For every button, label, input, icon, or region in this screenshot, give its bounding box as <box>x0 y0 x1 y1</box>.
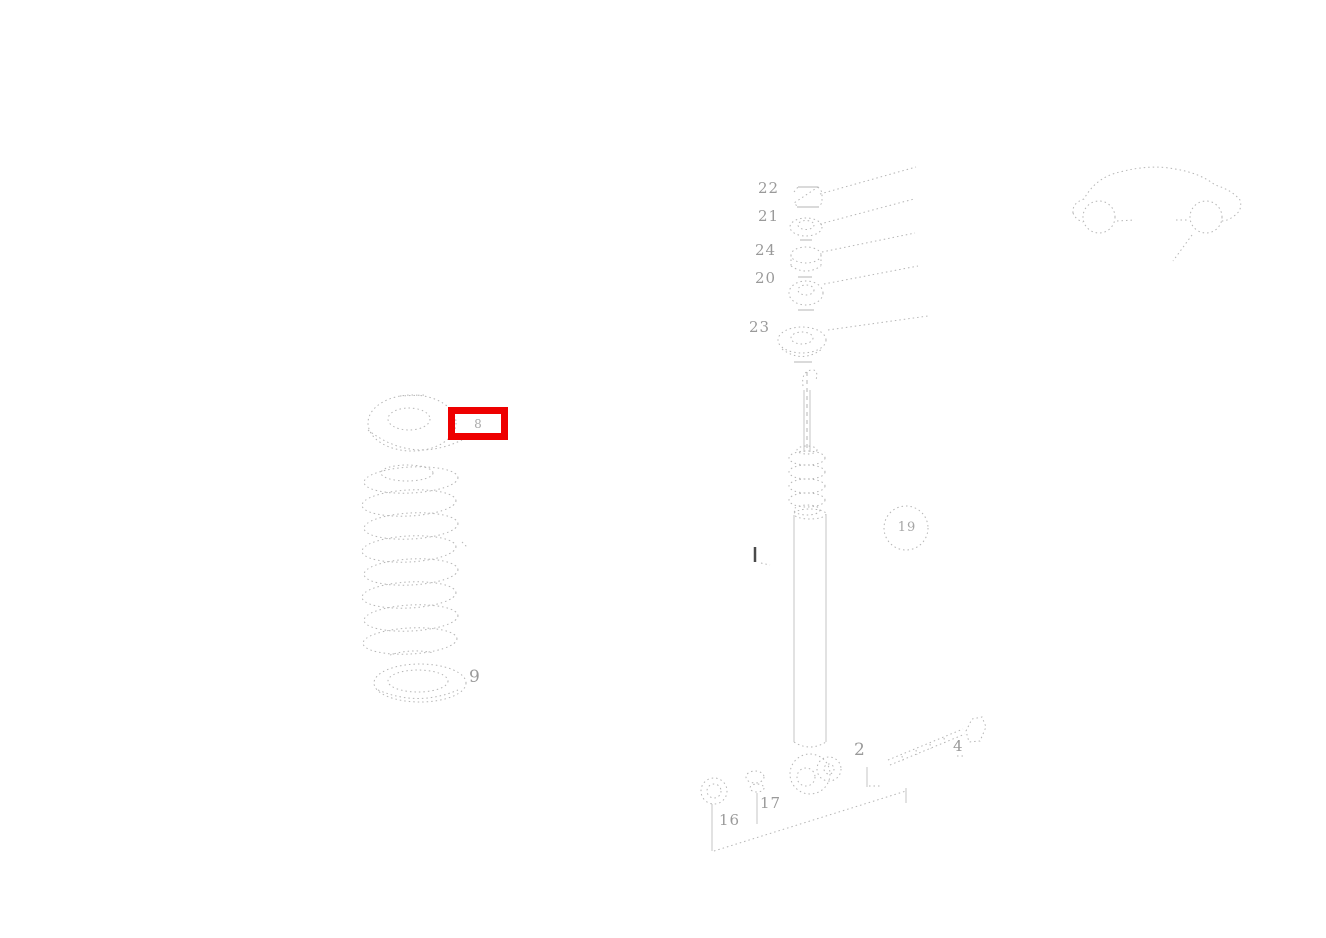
shock-boot-drawing <box>789 446 825 515</box>
shock-body-drawing <box>794 509 826 747</box>
hex-bolt-4-drawing <box>888 717 986 765</box>
spring-lower-seat-drawing <box>374 651 466 702</box>
leader-line <box>820 167 916 194</box>
callout-17[interactable]: 17 <box>760 796 781 811</box>
upper-mount-stack-drawing <box>778 167 928 362</box>
leader-line <box>822 233 915 252</box>
selected-part-label: 8 <box>474 418 482 430</box>
leader-line <box>820 199 914 224</box>
baseline-leader <box>714 788 906 851</box>
car-pointer-line <box>1173 235 1192 261</box>
shock-absorber-drawing <box>755 370 928 794</box>
leader-line <box>824 266 918 284</box>
rubber-bushing-20-drawing <box>789 281 823 310</box>
car-silhouette <box>1073 167 1241 261</box>
callout-23[interactable]: 23 <box>749 320 770 335</box>
reference-mark <box>755 547 770 565</box>
speck-mark <box>462 542 468 548</box>
bottom-hardware-drawing <box>701 717 986 851</box>
selected-part-highlight[interactable]: 8 <box>448 407 508 440</box>
callout-24[interactable]: 24 <box>755 243 776 258</box>
bracket-leader-2 <box>867 767 881 787</box>
callout-20[interactable]: 20 <box>755 271 776 286</box>
callout-19-circled[interactable]: 19 <box>895 521 919 534</box>
spacer-24-drawing <box>791 247 821 277</box>
diagram-line-art <box>0 0 1326 938</box>
callout-9[interactable]: 9 <box>469 669 481 686</box>
hex-nut-22-drawing <box>794 187 822 207</box>
callout-2[interactable]: 2 <box>854 742 866 759</box>
parts-diagram-canvas: 8 22 21 24 20 23 9 16 17 2 4 19 <box>0 0 1326 938</box>
retainer-plate-23-drawing <box>778 327 826 362</box>
leader-line <box>828 316 928 330</box>
callout-22[interactable]: 22 <box>758 181 779 196</box>
callout-4[interactable]: 4 <box>953 739 964 754</box>
shock-lower-eye-drawing <box>790 754 841 794</box>
coil-spring-drawing <box>361 465 468 657</box>
callout-21[interactable]: 21 <box>758 209 779 224</box>
lock-washer-21-drawing <box>790 218 822 240</box>
callout-16[interactable]: 16 <box>719 813 740 828</box>
